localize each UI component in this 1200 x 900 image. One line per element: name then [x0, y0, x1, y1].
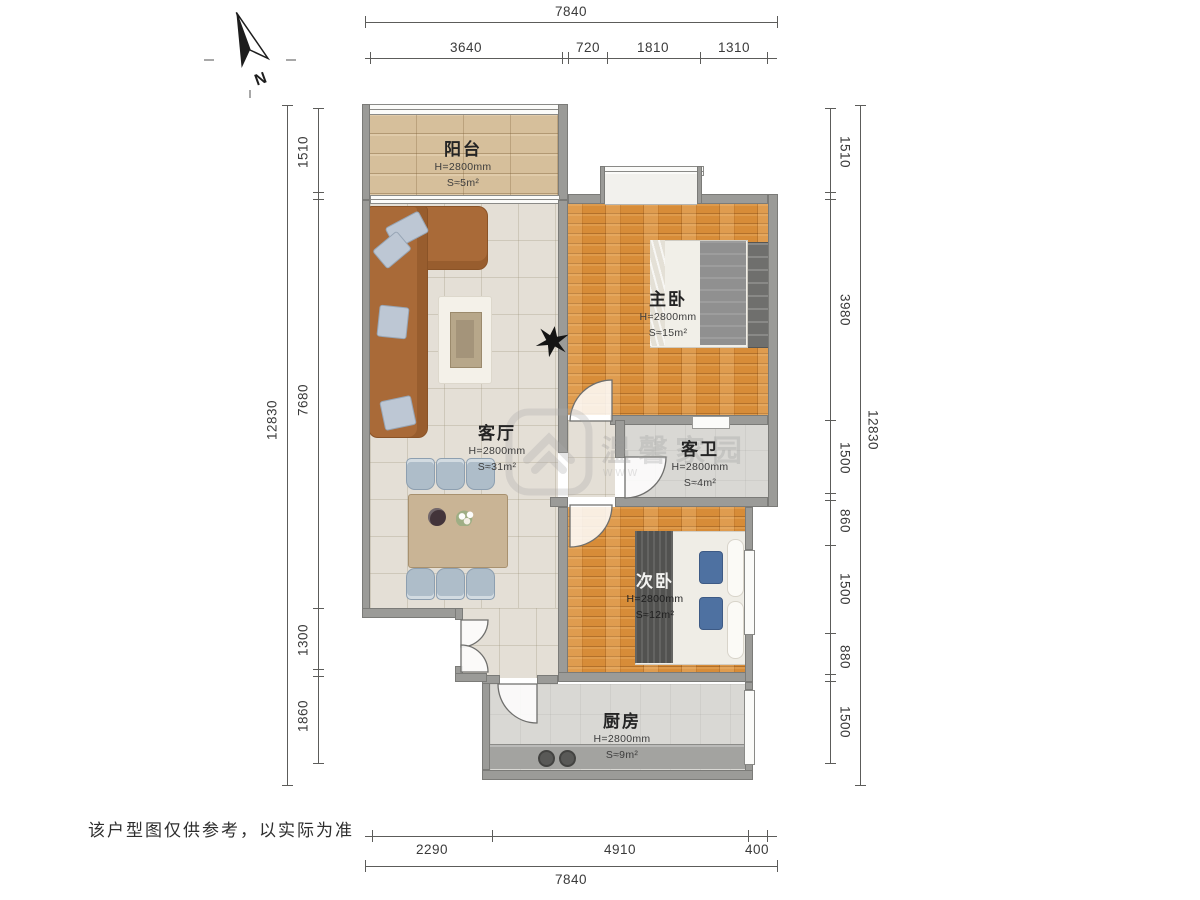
master-bedroom-door: [570, 380, 612, 421]
entry-door-leaf: [461, 645, 488, 672]
room-name: 主卧: [640, 290, 697, 310]
kitchen-door: [498, 684, 537, 723]
room-area: S≈9m²: [594, 748, 651, 763]
room-area: S≈12m²: [627, 608, 684, 623]
room-height: H=2800mm: [435, 160, 492, 175]
room-height: H=2800mm: [469, 444, 526, 459]
bathroom-door: [625, 457, 666, 498]
room-label-balcony: 阳台 H=2800mm S≈5m²: [435, 140, 492, 191]
ac-symbol: [534, 323, 570, 360]
room-label-second: 次卧 H=2800mm S≈12m²: [627, 572, 684, 623]
room-area: S≈15m²: [640, 326, 697, 341]
room-name: 阳台: [435, 140, 492, 160]
entry-door-leaf: [461, 620, 488, 647]
room-label-living: 客厅 H=2800mm S≈31m²: [469, 424, 526, 475]
room-area: S≈31m²: [469, 460, 526, 475]
floor-plan-canvas: N: [0, 0, 1200, 900]
room-area: S≈4m²: [672, 476, 729, 491]
room-area: S≈5m²: [435, 176, 492, 191]
room-height: H=2800mm: [627, 592, 684, 607]
second-bedroom-door: [570, 505, 612, 547]
room-height: H=2800mm: [640, 310, 697, 325]
room-height: H=2800mm: [672, 460, 729, 475]
room-label-master: 主卧 H=2800mm S≈15m²: [640, 290, 697, 341]
room-label-kitchen: 厨房 H=2800mm S≈9m²: [594, 712, 651, 763]
room-name: 客厅: [469, 424, 526, 444]
doors-overlay: [0, 0, 1200, 900]
room-name: 次卧: [627, 572, 684, 592]
room-height: H=2800mm: [594, 732, 651, 747]
room-label-bath: 客卫 H=2800mm S≈4m²: [672, 440, 729, 491]
room-name: 厨房: [594, 712, 651, 732]
room-name: 客卫: [672, 440, 729, 460]
